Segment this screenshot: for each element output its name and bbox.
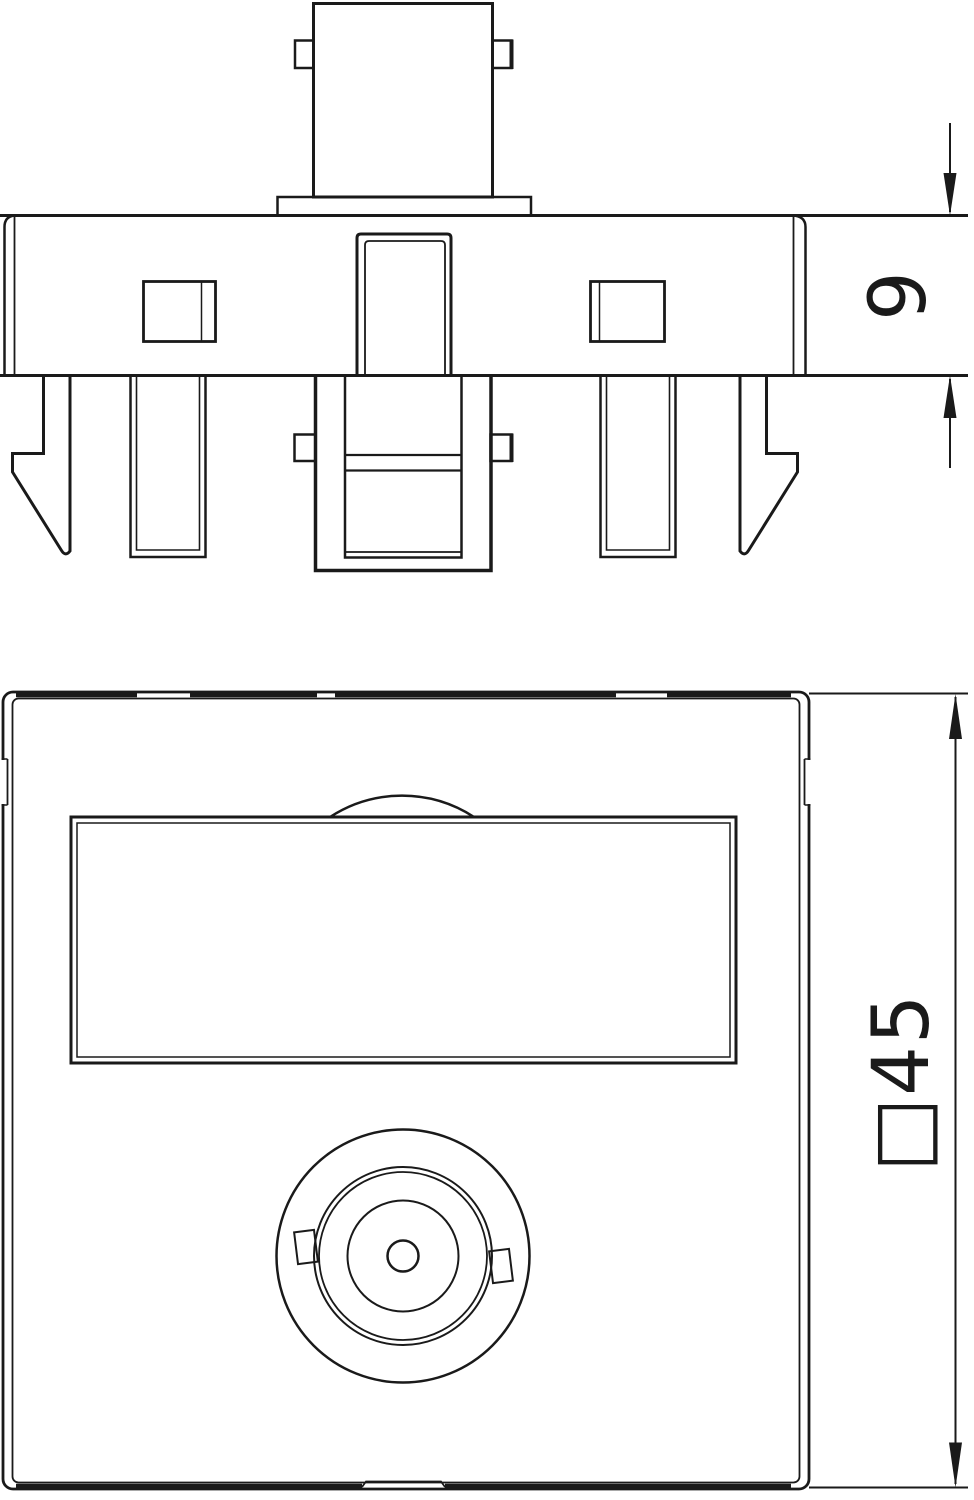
- dimension-front-size-label: □45: [857, 993, 947, 1172]
- left-edge-notch-mask: [1, 760, 7, 804]
- label-window-outer: [71, 817, 736, 1063]
- dimension-depth-arrow-up: [944, 376, 957, 419]
- center-slot-outer: [357, 234, 451, 375]
- bottom-edge-notch: [362, 1482, 445, 1488]
- label-window-inner: [77, 823, 730, 1057]
- bnc-barrel-lug-left: [295, 41, 314, 69]
- dimension-front-size: □45: [857, 694, 962, 1488]
- front-plate-outer: [3, 692, 809, 1489]
- center-clip-lug-right: [491, 435, 512, 462]
- bnc-bayonet-ring-outer: [314, 1167, 492, 1345]
- dimension-depth-label: 9: [854, 269, 944, 321]
- plate-window-left: [144, 282, 216, 342]
- right-edge-notch-mask: [806, 760, 812, 804]
- dimension-depth-arrow-down: [944, 173, 957, 216]
- plate-left-edge-outer: [5, 216, 15, 376]
- center-slot-inner: [365, 241, 445, 375]
- front-view: □45: [1, 692, 969, 1489]
- side-view: 9: [0, 4, 968, 571]
- bnc-collar: [278, 197, 532, 216]
- bnc-barrel: [314, 4, 493, 198]
- dimension-front-size-arrow-up: [949, 694, 962, 739]
- snap-barb-right: [740, 376, 798, 554]
- leg-left-inner: [137, 376, 200, 550]
- bnc-barrel-lug-right: [493, 41, 512, 69]
- center-clip-outer: [316, 376, 492, 571]
- dimension-plate-depth: 9: [854, 123, 957, 468]
- plate-window-right: [591, 282, 665, 342]
- technical-drawing-page: 9: [0, 0, 974, 1500]
- bnc-socket-front: [277, 1130, 530, 1383]
- multimedia-support-bnc-drawing: 9: [0, 0, 974, 1500]
- dimension-front-size-arrow-down: [949, 1443, 962, 1488]
- center-clip-inner: [345, 376, 462, 558]
- plate-right-edge-outer: [794, 216, 806, 376]
- leg-right-inner: [607, 376, 670, 550]
- label-window-arc-detent: [330, 796, 474, 817]
- bnc-center-pin: [388, 1241, 419, 1272]
- center-clip: [295, 376, 512, 571]
- bnc-bayonet-ring-inner: [319, 1172, 487, 1340]
- snap-barb-left: [13, 376, 71, 554]
- leg-right-outer: [601, 376, 676, 557]
- bnc-insulator-face: [348, 1201, 459, 1312]
- center-clip-lug-left: [295, 435, 316, 462]
- leg-left-outer: [131, 376, 206, 557]
